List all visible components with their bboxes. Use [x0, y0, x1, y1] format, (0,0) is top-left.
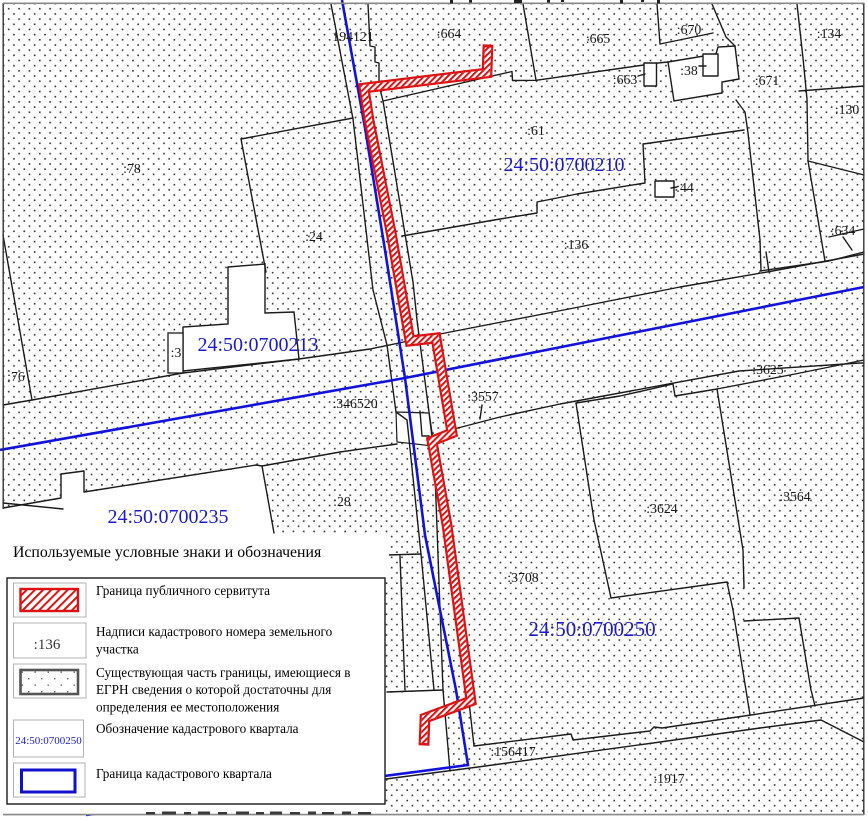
svg-text::665: :665: [586, 31, 611, 46]
svg-text::44: :44: [676, 180, 694, 195]
svg-text::28: :28: [333, 494, 351, 509]
svg-text:Существующая часть границы, им: Существующая часть границы, имеющиеся в: [96, 665, 350, 680]
svg-text::156417: :156417: [490, 744, 535, 759]
svg-text:Граница публичного сервитута: Граница публичного сервитута: [96, 583, 270, 598]
svg-text::78: :78: [123, 161, 141, 176]
svg-text:участка: участка: [96, 642, 139, 657]
svg-text::24: :24: [305, 229, 323, 244]
svg-text:Используемые условные знаки и: Используемые условные знаки и обозначени…: [13, 544, 321, 561]
svg-text:ЕГРН сведения о которой достат: ЕГРН сведения о которой достаточны для: [96, 682, 331, 697]
svg-text::61: :61: [527, 123, 545, 138]
svg-text::664: :664: [437, 26, 462, 41]
svg-text::3564: :3564: [779, 489, 811, 504]
svg-text:24:50:0700250: 24:50:0700250: [528, 617, 655, 641]
svg-text::38: :38: [680, 63, 698, 78]
svg-text:определения ее местоположения: определения ее местоположения: [96, 700, 279, 715]
svg-text::671: :671: [755, 73, 780, 88]
svg-text::3: :3: [171, 345, 182, 360]
svg-text::1917: :1917: [653, 771, 685, 786]
svg-text::3557: :3557: [467, 389, 499, 404]
svg-text::3708: :3708: [507, 570, 539, 585]
svg-text::663: :663: [613, 72, 638, 87]
svg-text::136: :136: [34, 637, 61, 653]
svg-text::634: :634: [831, 223, 856, 238]
svg-text::134: :134: [817, 26, 842, 41]
svg-text:24:50:0700210: 24:50:0700210: [503, 154, 624, 176]
svg-text:Граница кадастрового квартала: Граница кадастрового квартала: [96, 766, 272, 781]
svg-text::670: :670: [677, 22, 702, 37]
svg-text:24:50:0700235: 24:50:0700235: [107, 506, 228, 528]
svg-text:Обозначение кадастрового кварт: Обозначение кадастрового квартала: [96, 721, 299, 736]
svg-text::76: :76: [7, 369, 25, 384]
svg-text::3624: :3624: [646, 501, 678, 516]
svg-text::136: :136: [564, 237, 589, 252]
svg-text:24:50:0700250: 24:50:0700250: [15, 735, 82, 747]
svg-text:24:50:0700213: 24:50:0700213: [197, 334, 318, 356]
svg-text::3625: :3625: [752, 362, 784, 377]
svg-text:194121: 194121: [332, 29, 373, 44]
svg-text::346520: :346520: [332, 396, 377, 411]
svg-text::130: :130: [835, 102, 860, 117]
svg-text:Надписи кадастрового номера зе: Надписи кадастрового номера земельного: [96, 624, 333, 639]
